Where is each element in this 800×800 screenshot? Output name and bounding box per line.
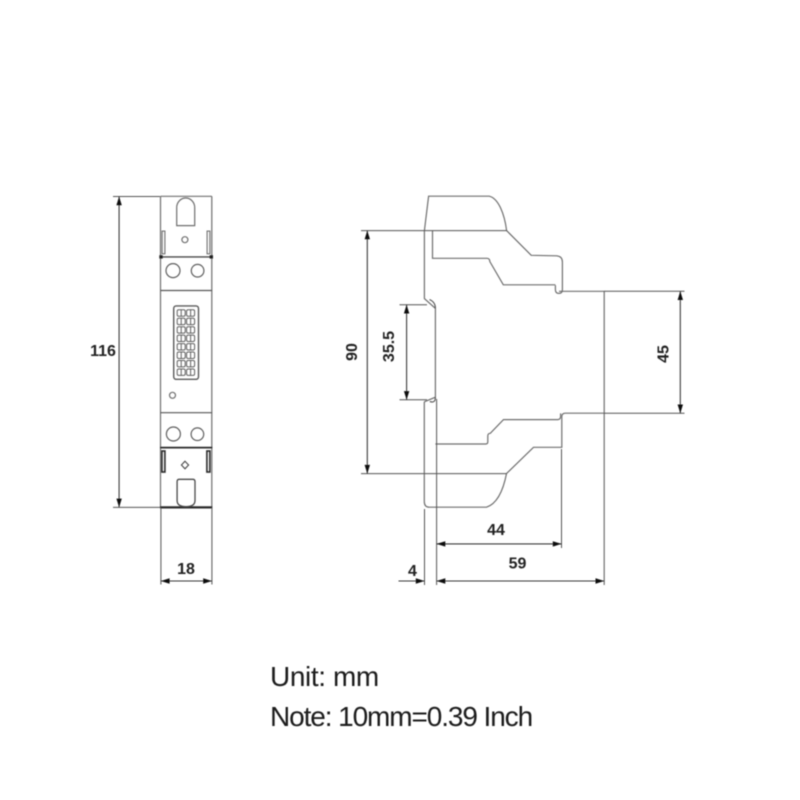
svg-text:44: 44 xyxy=(487,522,505,539)
svg-text:18: 18 xyxy=(177,561,195,578)
svg-text:35.5: 35.5 xyxy=(381,331,398,362)
svg-text:Unit: mm: Unit: mm xyxy=(270,661,379,692)
svg-text:Note: 10mm=0.39 Inch: Note: 10mm=0.39 Inch xyxy=(270,701,532,732)
svg-text:116: 116 xyxy=(90,343,116,360)
svg-text:59: 59 xyxy=(509,556,527,573)
svg-text:90: 90 xyxy=(344,343,361,361)
svg-text:4: 4 xyxy=(408,563,417,580)
svg-text:45: 45 xyxy=(656,345,673,363)
